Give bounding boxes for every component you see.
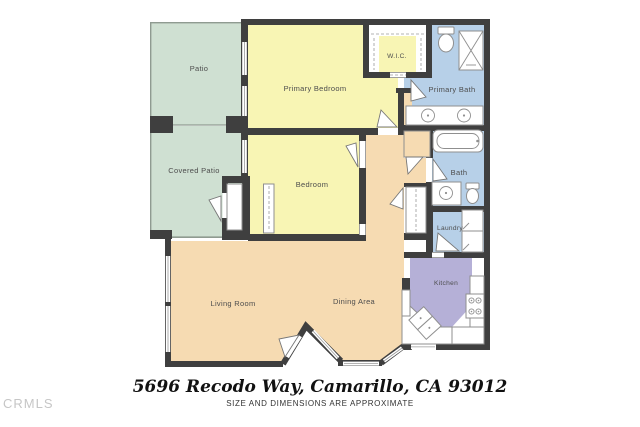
room-label-dining-area: Dining Area bbox=[333, 297, 376, 306]
washer-fixture bbox=[462, 210, 483, 231]
floor-plan-page: Patio Covered Patio Primary Bedroom W.I.… bbox=[0, 0, 640, 427]
room-label-primary-bath: Primary Bath bbox=[429, 85, 476, 94]
patio-pillar bbox=[150, 230, 172, 239]
room-patio-floor bbox=[151, 23, 242, 125]
room-label-patio: Patio bbox=[190, 64, 209, 73]
toilet-fixture bbox=[439, 34, 454, 52]
room-label-primary-bedroom: Primary Bedroom bbox=[284, 84, 347, 93]
double-vanity-fixture bbox=[406, 106, 483, 125]
room-label-covered-patio: Covered Patio bbox=[168, 166, 219, 175]
linen-closet bbox=[404, 131, 430, 157]
dryer-fixture bbox=[462, 231, 483, 252]
room-label-kitchen: Kitchen bbox=[434, 280, 458, 287]
toilet-fixture bbox=[438, 27, 454, 34]
patio-closet bbox=[227, 184, 242, 230]
crmls-watermark: CRMLS bbox=[3, 396, 54, 411]
room-label-living-room: Living Room bbox=[211, 299, 256, 308]
room-label-bedroom: Bedroom bbox=[296, 180, 329, 189]
stove-fixture bbox=[466, 294, 484, 318]
kitchen-counter bbox=[402, 290, 410, 316]
floor-plan-drawing: Patio Covered Patio Primary Bedroom W.I.… bbox=[0, 0, 640, 427]
address-title: 5696 Recodo Way, Camarillo, CA 93012 bbox=[0, 377, 640, 397]
room-label-bath: Bath bbox=[451, 168, 468, 177]
kitchen-counter bbox=[452, 327, 484, 344]
size-disclaimer: SIZE AND DIMENSIONS ARE APPROXIMATE bbox=[0, 399, 640, 408]
toilet-fixture bbox=[467, 189, 479, 204]
room-label-wic: W.I.C. bbox=[387, 53, 407, 60]
patio-pillar bbox=[150, 116, 173, 133]
room-label-laundry: Laundry bbox=[437, 225, 463, 232]
